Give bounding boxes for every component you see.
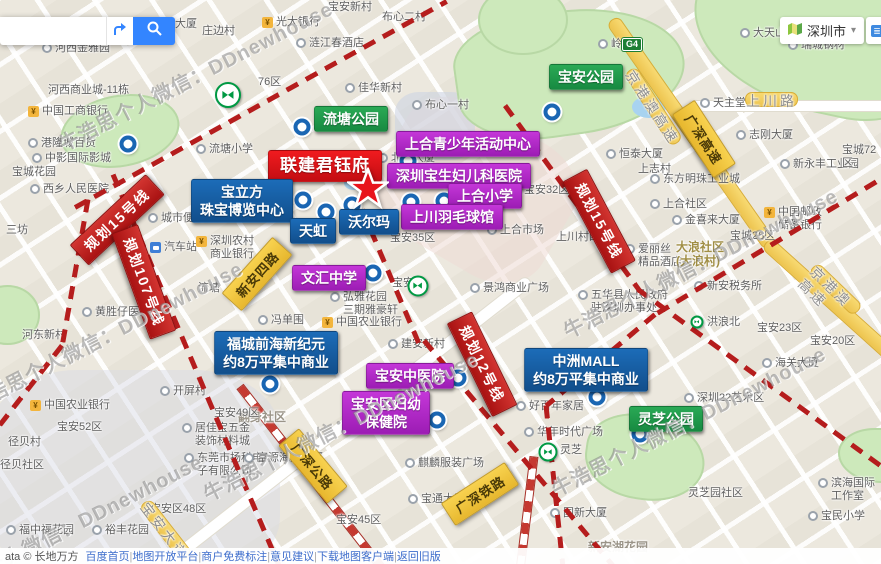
map-poi: 滨海国际工作室	[818, 477, 881, 503]
poi-label: 滨海国际工作室	[831, 477, 881, 503]
poi-label: 宝安区48区	[150, 503, 206, 516]
map-poi: 志刚大厦	[736, 129, 793, 142]
map-poi: 宝城花园	[12, 166, 56, 179]
poi-dot-icon	[516, 401, 526, 411]
poi-circle-marker	[295, 192, 312, 209]
poi-label: G4	[622, 38, 642, 51]
water-pond	[344, 176, 364, 190]
poi-circle-marker	[365, 265, 382, 282]
poi-label: 上志村	[638, 163, 671, 176]
poi-dot-icon	[684, 393, 694, 403]
map-annotation-label: 宝安公园	[549, 64, 623, 90]
map-poi: 宝民小学	[808, 510, 865, 523]
poi-label: 宝城72区	[842, 144, 881, 170]
baidu-map-page: 河西金雅园大厦庄边村¥光大银行涟江春酒店布心二村宝安新村河西商业城-11栋¥中国…	[0, 0, 881, 564]
map-poi: 金喜来大厦	[672, 214, 740, 227]
map-annotation-label: 中洲MALL 约8万平集中商业	[524, 348, 648, 392]
map-poi: 五华县人民政府 驻深圳办事处	[578, 289, 668, 315]
poi-label: 弘雅花园 三期雅豪轩	[343, 291, 398, 317]
poi-dot-icon	[196, 144, 206, 154]
poi-label: 居佳宝五金 装饰材料城	[195, 422, 250, 448]
line-ribbon-layer: 规划15号线规划107号线规划12号线规划15号线新安四路广深公路广深铁路广深高…	[0, 0, 881, 564]
map-annotation-label: 沃尔玛	[339, 209, 399, 235]
poi-label: 宝安	[392, 277, 414, 290]
map-poi: 布心二村	[382, 11, 426, 24]
poi-dot-icon	[808, 511, 818, 521]
map-poi: 城市便捷酒店	[148, 212, 227, 225]
map-poi: 宝安23区	[757, 322, 802, 335]
map-poi: ¥光大银行	[262, 16, 320, 29]
bank-icon: ¥	[196, 236, 207, 247]
poi-label: 宝安32区	[524, 184, 569, 197]
bus-icon	[150, 242, 161, 253]
search-icon	[146, 20, 163, 42]
map-poi: 华年时代广场	[524, 426, 603, 439]
footer-link[interactable]: 意见建议	[270, 551, 314, 563]
poi-label: 深圳农村 商业银行	[210, 235, 254, 261]
poi-dot-icon	[412, 100, 422, 110]
poi-label: 中国邮政 储蓄银行	[778, 206, 822, 232]
poi-label: 岭下山	[611, 38, 644, 51]
poi-label: 宝安23区	[757, 322, 802, 335]
poi-dot-icon	[700, 98, 710, 108]
map-park-layer	[0, 0, 881, 564]
map-poi: 天主堂	[700, 97, 746, 110]
poi-dot-icon	[92, 525, 102, 535]
poi-dot-icon	[650, 174, 660, 184]
map-poi: 宝安52区	[57, 421, 102, 434]
poi-label: 北京大厦	[391, 152, 435, 165]
park-area	[55, 85, 186, 177]
map-road-layer	[0, 0, 881, 564]
poi-label: 涟江春酒店	[309, 37, 364, 50]
map-poi: 上合社区	[650, 198, 707, 211]
poi-label: 恒泰大厦	[619, 148, 663, 161]
poi-label: 爱丽丝 精品酒店	[638, 243, 682, 269]
map-area-tint	[0, 370, 280, 564]
poi-label: 金喜来大厦	[685, 214, 740, 227]
map-poi: 灵芝园社区	[688, 487, 743, 500]
bank-icon: ¥	[30, 400, 41, 411]
poi-label: 城市便捷酒店	[161, 212, 227, 225]
poi-label: 径贝村	[8, 436, 41, 449]
city-name: 深圳市	[807, 21, 846, 40]
poi-label: 建安新村	[401, 338, 445, 351]
poi-dot-icon	[244, 453, 254, 463]
poi-circle-marker	[589, 389, 606, 406]
planned-metro-dashed-line	[637, 287, 881, 473]
footer-link[interactable]: 下载地图客户端	[317, 551, 394, 563]
map-poi: 麒麟服装广场	[405, 457, 484, 470]
map-poi: 涟江春酒店	[296, 37, 364, 50]
poi-label: 上合社区	[663, 198, 707, 211]
poi-label: 宝城28区	[730, 230, 775, 243]
poi-label: 灵芝园社区	[688, 487, 743, 500]
map-poi: 北京大厦	[378, 152, 435, 165]
map-poi: 灵芝	[560, 444, 582, 457]
map-poi: ¥中国邮政 储蓄银行	[764, 206, 822, 232]
watermark-text: 牛浩思个人微信：DDnewhouse	[546, 338, 831, 502]
poi-dot-icon	[780, 159, 790, 169]
map-poi: 庄边村	[202, 25, 235, 38]
directions-button[interactable]	[106, 17, 133, 45]
planned-metro-dashed-line	[0, 344, 64, 435]
poi-label: 天主堂	[713, 97, 746, 110]
poi-label: 黄胜仔医馆	[95, 306, 150, 319]
bank-icon: ¥	[262, 17, 273, 28]
watermark-text: 牛浩思个人微信：DDnewhouse	[558, 180, 843, 344]
annotation-label-layer: 联建君钰府宝安公园流塘公园灵芝公园上合青少年活动中心深圳宝生妇儿科医院上合小学上…	[0, 0, 881, 564]
road-name-ribbon: 广深公路	[278, 428, 348, 504]
poi-label: 深圳22艺术区	[697, 392, 764, 405]
poi-label: 宝安20区	[810, 335, 855, 348]
poi-label: 76区	[258, 76, 281, 89]
poi-circle-marker	[344, 197, 361, 214]
park-area	[580, 407, 711, 508]
poi-label: 福中福花园	[19, 524, 74, 537]
map-poi: 径贝村	[8, 436, 41, 449]
footer-links: 百度首页|地图开放平台|商户免费标注|意见建议|下载地图客户端|返回旧版	[86, 548, 441, 564]
map-poi: ¥中国农业银行	[30, 399, 110, 412]
footer-link[interactable]: 百度首页	[86, 551, 130, 563]
poi-circle-marker	[429, 412, 446, 429]
watermark-text: 牛浩思个人微信：DDnewhouse	[0, 253, 247, 417]
poi-circle-marker	[294, 119, 311, 136]
railway-segment	[236, 384, 389, 564]
poi-label: 开屏村	[173, 385, 206, 398]
map-poi: 三坊	[6, 224, 28, 237]
map-poi: 岭下山	[598, 38, 644, 51]
map-annotation-label: 文汇中学	[292, 265, 366, 291]
map-poi: 上志村	[638, 163, 671, 176]
map-poi: 河西商业城-11栋	[48, 84, 129, 97]
planned-metro-dashed-line	[503, 104, 642, 293]
poi-dot-icon	[487, 225, 497, 235]
poi-dot-icon	[296, 38, 306, 48]
poi-dot-icon	[148, 213, 158, 223]
map-poi: 福中福花园	[6, 524, 74, 537]
poi-label: 中国农业银行	[336, 316, 402, 329]
project-star-icon	[347, 168, 389, 215]
map-poi: 深圳22艺术区	[684, 392, 764, 405]
bank-icon: ¥	[28, 106, 39, 117]
poi-label: 庄边村	[202, 25, 235, 38]
map-poi: 大厦	[175, 18, 197, 31]
poi-dot-icon	[470, 283, 480, 293]
map-annotation-label: 天虹	[290, 218, 336, 244]
footer-link[interactable]: 返回旧版	[397, 551, 441, 563]
poi-label: 汽车站	[164, 241, 197, 254]
poi-label: 宝安52区	[57, 421, 102, 434]
search-bar	[0, 17, 175, 45]
poi-dot-icon	[598, 39, 608, 49]
poi-label: 宝民小学	[821, 510, 865, 523]
map-annotation-label: 灵芝公园	[629, 406, 703, 432]
search-input[interactable]	[0, 17, 106, 45]
poi-label: 河东新村	[22, 329, 66, 342]
bank-icon: ¥	[322, 317, 333, 328]
map-tint-layer	[0, 0, 881, 564]
map-poi: 黄胜仔医馆	[82, 306, 150, 319]
poi-circle-marker	[544, 104, 561, 121]
project-name-label: 联建君钰府	[268, 150, 382, 182]
poi-dot-icon	[184, 453, 194, 463]
map-poi: 宝安区48区	[150, 503, 206, 516]
road-segment	[688, 100, 881, 112]
road-name-ribbon: 广深铁路	[441, 462, 519, 526]
poi-label: 海关大厦	[775, 357, 819, 370]
water-pond	[632, 96, 666, 118]
map-poi: 翻身社区	[238, 410, 286, 424]
map-annotation-label: 宝安中医院	[366, 363, 454, 389]
map-poi: 宝城72区	[842, 144, 881, 170]
map-annotation-label: 流塘公园	[314, 106, 388, 132]
poi-circle-marker	[632, 426, 649, 443]
map-poi: 宝安35区	[390, 232, 435, 245]
poi-label: 宝安35区	[390, 232, 435, 245]
project-star-layer	[0, 0, 881, 564]
poi-dot-icon	[550, 508, 560, 518]
poi-dot-icon	[330, 292, 340, 302]
poi-circle-marker	[318, 204, 335, 221]
poi-dot-icon	[736, 130, 746, 140]
poi-label: 布心一村	[425, 99, 469, 112]
map-poi: 宝通大厦	[408, 493, 465, 506]
map-canvas[interactable]: 河西金雅园大厦庄边村¥光大银行涟江春酒店布心二村宝安新村河西商业城-11栋¥中国…	[0, 0, 881, 564]
map-annotation-label: 上川羽毛球馆	[401, 204, 503, 230]
map-poi: 西乡人民医院	[30, 183, 109, 196]
planned-metro-dashed-line	[111, 174, 284, 564]
poi-label: 好百年家居	[529, 400, 584, 413]
poi-dot-icon	[740, 28, 750, 38]
map-poi: 流塘	[198, 282, 220, 295]
planned-line-ribbon: 规划12号线	[447, 311, 518, 416]
poi-label: 宝安45区	[336, 514, 381, 527]
search-box	[0, 17, 133, 45]
planned-metro-dashed-line	[654, 168, 881, 316]
poi-label: 宝城花园	[12, 166, 56, 179]
map-poi: 76区	[258, 76, 281, 89]
map-poi: 宝安新村	[328, 1, 372, 14]
map-poi: 海关大厦	[762, 357, 819, 370]
city-map-icon	[788, 23, 802, 38]
map-poi: 弘雅花园 三期雅豪轩	[330, 291, 398, 317]
traffic-icon: ≣	[871, 25, 881, 37]
poi-label: 冯单围	[271, 314, 304, 327]
metro-station-icon[interactable]	[539, 443, 558, 462]
poi-label: 麒麟服装广场	[418, 457, 484, 470]
map-poi: 宝城28区	[730, 230, 775, 243]
map-poi: 上川村四区	[556, 231, 611, 244]
poi-label: 灵芝	[560, 444, 582, 457]
map-poi: 新安税务所	[694, 280, 762, 293]
map-poi: 京港澳高速	[623, 66, 683, 147]
chevron-down-icon: ▾	[851, 25, 856, 36]
map-area-tint	[395, 92, 475, 160]
road-name-ribbon: 新安四路	[222, 237, 293, 312]
poi-label: 东莞市扬科电 子有限公司	[197, 452, 263, 478]
footer-link[interactable]: 地图开放平台	[132, 551, 198, 563]
planned-line-ribbon: 规划15号线	[70, 174, 165, 265]
poi-label: 裕丰花园	[105, 524, 149, 537]
poi-dot-icon	[378, 153, 388, 163]
map-poi: 京港澳高速	[808, 262, 864, 317]
poi-label: 新永丰工业园	[793, 158, 859, 171]
poi-dot-icon	[160, 386, 170, 396]
map-poi: 大浪社区 (大浪村)	[676, 240, 724, 268]
map-poi: 汽车站	[150, 241, 197, 254]
footer-link[interactable]: 商户免费标注	[201, 551, 267, 563]
poi-dot-icon	[650, 199, 660, 209]
map-poi: 东莞市扬科电 子有限公司	[184, 452, 263, 478]
map-poi: 裕丰花园	[92, 524, 149, 537]
map-annotation-label: 宝立方 珠宝博览中心	[191, 179, 293, 223]
poi-label: 上川村四区	[556, 231, 611, 244]
map-poi: 布心一村	[412, 99, 469, 112]
poi-circle-marker	[403, 194, 420, 211]
map-poi: 景鸿商业广场	[470, 282, 549, 295]
metro-station-icon[interactable]	[691, 316, 704, 329]
poi-label: 景鸿商业广场	[483, 282, 549, 295]
poi-marker-layer	[0, 0, 881, 564]
map-poi: G4	[622, 38, 642, 51]
map-railway-layer	[0, 0, 881, 564]
map-poi: 宝安	[392, 277, 414, 290]
poi-label: 京港澳高速	[622, 67, 682, 147]
park-area	[447, 0, 692, 150]
road-segment	[761, 237, 881, 423]
poi-label: 宝安49区	[214, 407, 259, 420]
poi-dot-icon	[524, 427, 534, 437]
watermark-text: 牛浩思个人微信：DDnewhouse	[0, 446, 207, 564]
poi-label: 中国工商银行	[42, 105, 108, 118]
planned-line-ribbon: 规划15号线	[562, 169, 635, 274]
poi-dot-icon	[28, 138, 38, 148]
map-poi: 上合市场	[487, 224, 544, 237]
planned-metro-line-layer	[0, 0, 881, 564]
map-poi: 建安新村	[388, 338, 445, 351]
map-poi: 宝安32区	[524, 184, 569, 197]
poi-dot-icon	[625, 244, 635, 254]
map-poi: ¥深圳农村 商业银行	[196, 235, 254, 261]
poi-circle-marker	[400, 153, 417, 170]
map-annotation-label: 宝安区妇幼 保健院	[342, 391, 430, 435]
planned-metro-dashed-line	[422, 339, 619, 564]
map-poi: 开屏村	[160, 385, 206, 398]
poi-label: 上合市场	[500, 224, 544, 237]
poi-label: 上川路	[746, 93, 797, 110]
poi-dot-icon	[82, 307, 92, 317]
planned-metro-dashed-line	[544, 405, 566, 564]
poi-label: 中国农业银行	[44, 399, 110, 412]
map-poi: 上川路	[745, 92, 798, 107]
search-button[interactable]	[133, 17, 175, 45]
poi-circle-marker	[120, 136, 137, 153]
map-poi-layer: 河西金雅园大厦庄边村¥光大银行涟江春酒店布心二村宝安新村河西商业城-11栋¥中国…	[0, 0, 881, 564]
planned-metro-dashed-line	[545, 313, 657, 408]
poi-dot-icon	[182, 423, 192, 433]
map-poi: 居佳宝五金 装饰材料城	[182, 422, 250, 448]
poi-dot-icon	[818, 478, 828, 488]
road-segment	[146, 275, 534, 564]
poi-label: 径贝社区	[0, 459, 44, 472]
park-area	[0, 285, 40, 345]
road-segment	[606, 15, 777, 251]
map-poi: 河东新村	[22, 329, 66, 342]
map-area-tint	[355, 78, 595, 303]
poi-label: 大浪社区 (大浪村)	[676, 240, 724, 268]
poi-label: 光大银行	[276, 16, 320, 29]
poi-label: 佳华新村	[358, 82, 402, 95]
poi-label: 华年时代广场	[537, 426, 603, 439]
poi-dot-icon	[408, 494, 418, 504]
map-poi: 冯单围	[258, 314, 304, 327]
poi-dot-icon	[32, 153, 42, 163]
poi-dot-icon	[30, 184, 40, 194]
watermark-text: 牛浩思个人微信：DDnewhouse	[198, 343, 483, 507]
bank-icon: ¥	[764, 207, 775, 218]
map-poi: 宝安49区	[214, 407, 259, 420]
map-poi: 宝安20区	[810, 335, 855, 348]
poi-label: 三坊	[6, 224, 28, 237]
poi-dot-icon	[388, 339, 398, 349]
poi-label: 国新大厦	[563, 507, 607, 520]
map-poi: 径贝社区	[0, 459, 44, 472]
map-annotation-label: 上合小学	[448, 183, 522, 209]
map-poi: 国新大厦	[550, 507, 607, 520]
poi-dot-icon	[6, 525, 16, 535]
map-poi: 流塘小学	[196, 143, 253, 156]
map-poi: 富源海滨大厦	[244, 452, 323, 465]
poi-dot-icon	[258, 315, 268, 325]
poi-label: 新安税务所	[707, 280, 762, 293]
poi-dot-icon	[405, 458, 415, 468]
traffic-toggle[interactable]: ≣ 路况	[866, 17, 881, 44]
poi-label: 港隆城百货	[41, 137, 96, 150]
planned-metro-dashed-line	[360, 209, 423, 349]
poi-label: 宝通大厦	[421, 493, 465, 506]
poi-label: 大厦	[175, 18, 197, 31]
park-area	[838, 428, 881, 483]
poi-label: 东方明珠工业城	[663, 173, 740, 186]
poi-label: 宝安新村	[328, 1, 372, 14]
map-annotation-label: 上合青少年活动中心	[396, 131, 540, 157]
poi-label: 中影国际影城	[45, 152, 111, 165]
poi-dot-icon	[578, 290, 588, 300]
poi-label: 志刚大厦	[749, 129, 793, 142]
map-poi: 佳华新村	[345, 82, 402, 95]
map-poi: 东方明珠工业城	[650, 173, 740, 186]
park-area	[478, 0, 568, 55]
metro-station-icon[interactable]	[408, 276, 429, 297]
city-selector[interactable]: 深圳市 ▾	[780, 17, 864, 44]
map-poi: ¥中国农业银行	[322, 316, 402, 329]
metro-station-layer	[0, 0, 881, 564]
map-poi: 港隆城百货	[28, 137, 96, 150]
poi-dot-icon	[606, 149, 616, 159]
planned-line-ribbon: 规划107号线	[111, 224, 176, 340]
planned-metro-dashed-line	[59, 199, 90, 348]
poi-dot-icon	[672, 215, 682, 225]
watermark-layer: 牛浩思个人微信：DDnewhouse牛浩思个人微信：DDnewhouse牛浩思个…	[0, 0, 881, 564]
metro-station-icon[interactable]	[215, 82, 241, 108]
footer-bar: ata © 长地万方 百度首页|地图开放平台|商户免费标注|意见建议|下载地图客…	[0, 548, 881, 564]
poi-dot-icon	[345, 83, 355, 93]
poi-label: 京港澳高速	[795, 263, 862, 329]
map-annotation-label: 深圳宝生妇儿科医院	[387, 163, 531, 189]
poi-circle-marker	[436, 193, 453, 210]
map-poi: 中影国际影城	[32, 152, 111, 165]
